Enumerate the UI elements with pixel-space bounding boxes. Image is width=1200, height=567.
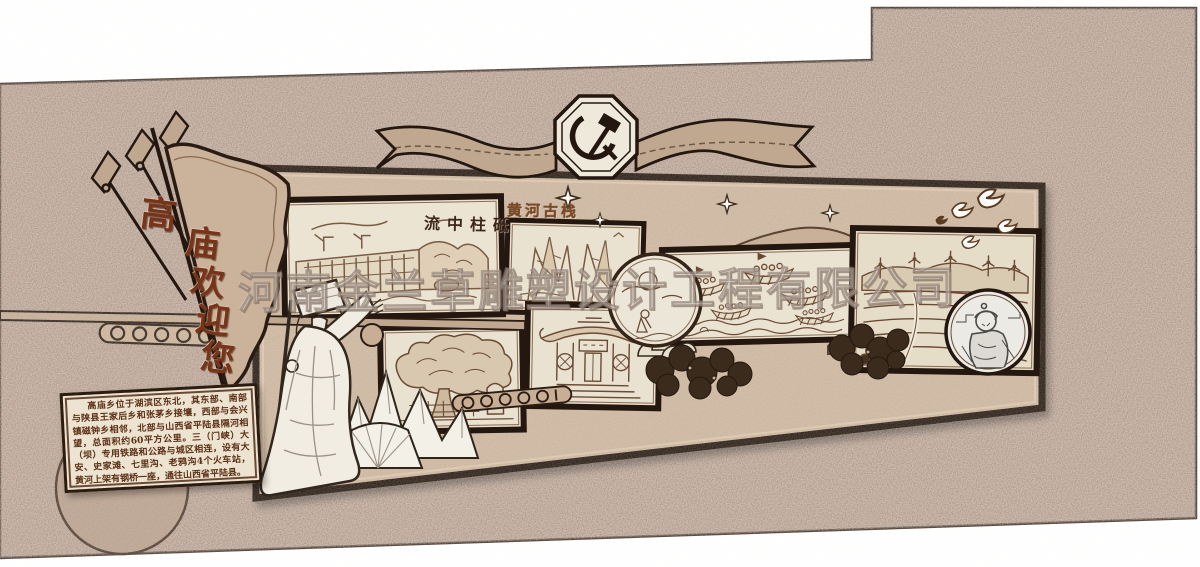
pennant-char: 高 xyxy=(138,184,180,240)
township-info-board: 高庙乡位于湖滨区东北，其东部、南部与陕县王家后乡和张茅乡接壤，西部与会兴镇磁钟乡… xyxy=(60,383,263,493)
ancient-tree-panel xyxy=(380,326,524,432)
cliff-panel-seal-label: 黄河古栈 xyxy=(507,199,579,221)
dam-panel-calligraphy: 流中柱砥 xyxy=(424,210,517,236)
cultural-wall-rendering: 河南金兰草雕塑设计工程有限公司 高 庙 欢 迎 您 流中柱砥 黄河古栈 高庙乡位… xyxy=(0,0,1200,567)
pennant-char: 您 xyxy=(198,329,238,382)
party-emblem-icon xyxy=(555,96,637,178)
company-watermark: 河南金兰草雕塑设计工程有限公司 xyxy=(238,251,972,312)
